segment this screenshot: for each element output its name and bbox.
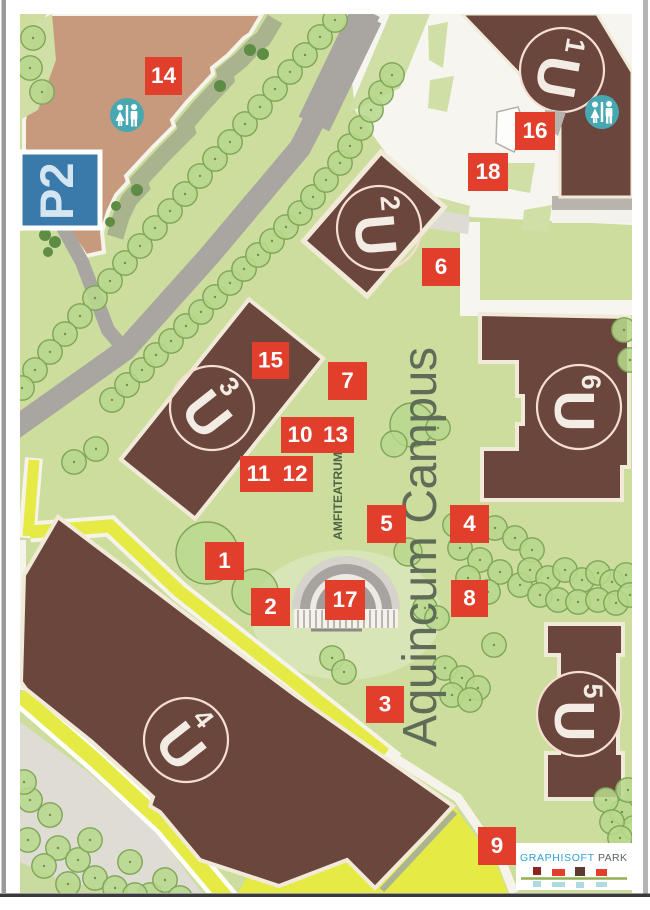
svg-text:6: 6	[435, 254, 448, 279]
svg-text:1: 1	[218, 548, 231, 573]
svg-text:10: 10	[287, 422, 312, 447]
svg-text:7: 7	[341, 368, 354, 393]
svg-text:16: 16	[522, 118, 547, 143]
svg-text:15: 15	[258, 348, 283, 373]
svg-text:3: 3	[379, 692, 392, 717]
svg-text:PARK: PARK	[598, 852, 627, 864]
svg-text:18: 18	[475, 159, 500, 184]
svg-text:5: 5	[578, 683, 608, 698]
svg-text:GRAPHISOFT: GRAPHISOFT	[520, 852, 595, 864]
svg-text:2: 2	[264, 594, 277, 619]
svg-text:14: 14	[151, 63, 177, 88]
svg-text:4: 4	[463, 511, 476, 536]
svg-text:AMFITEATRUM: AMFITEATRUM	[331, 452, 345, 540]
svg-text:5: 5	[380, 511, 393, 536]
svg-text:U: U	[542, 700, 606, 741]
svg-text:2: 2	[374, 194, 405, 212]
svg-text:17: 17	[332, 587, 357, 612]
svg-text:9: 9	[491, 833, 504, 858]
svg-text:13: 13	[323, 422, 348, 447]
svg-text:U: U	[341, 212, 408, 259]
svg-text:8: 8	[463, 586, 476, 611]
svg-text:P2: P2	[30, 163, 83, 221]
svg-text:U: U	[542, 390, 606, 431]
svg-text:6: 6	[576, 374, 606, 389]
svg-text:11: 11	[247, 461, 271, 486]
svg-text:12: 12	[282, 461, 307, 486]
